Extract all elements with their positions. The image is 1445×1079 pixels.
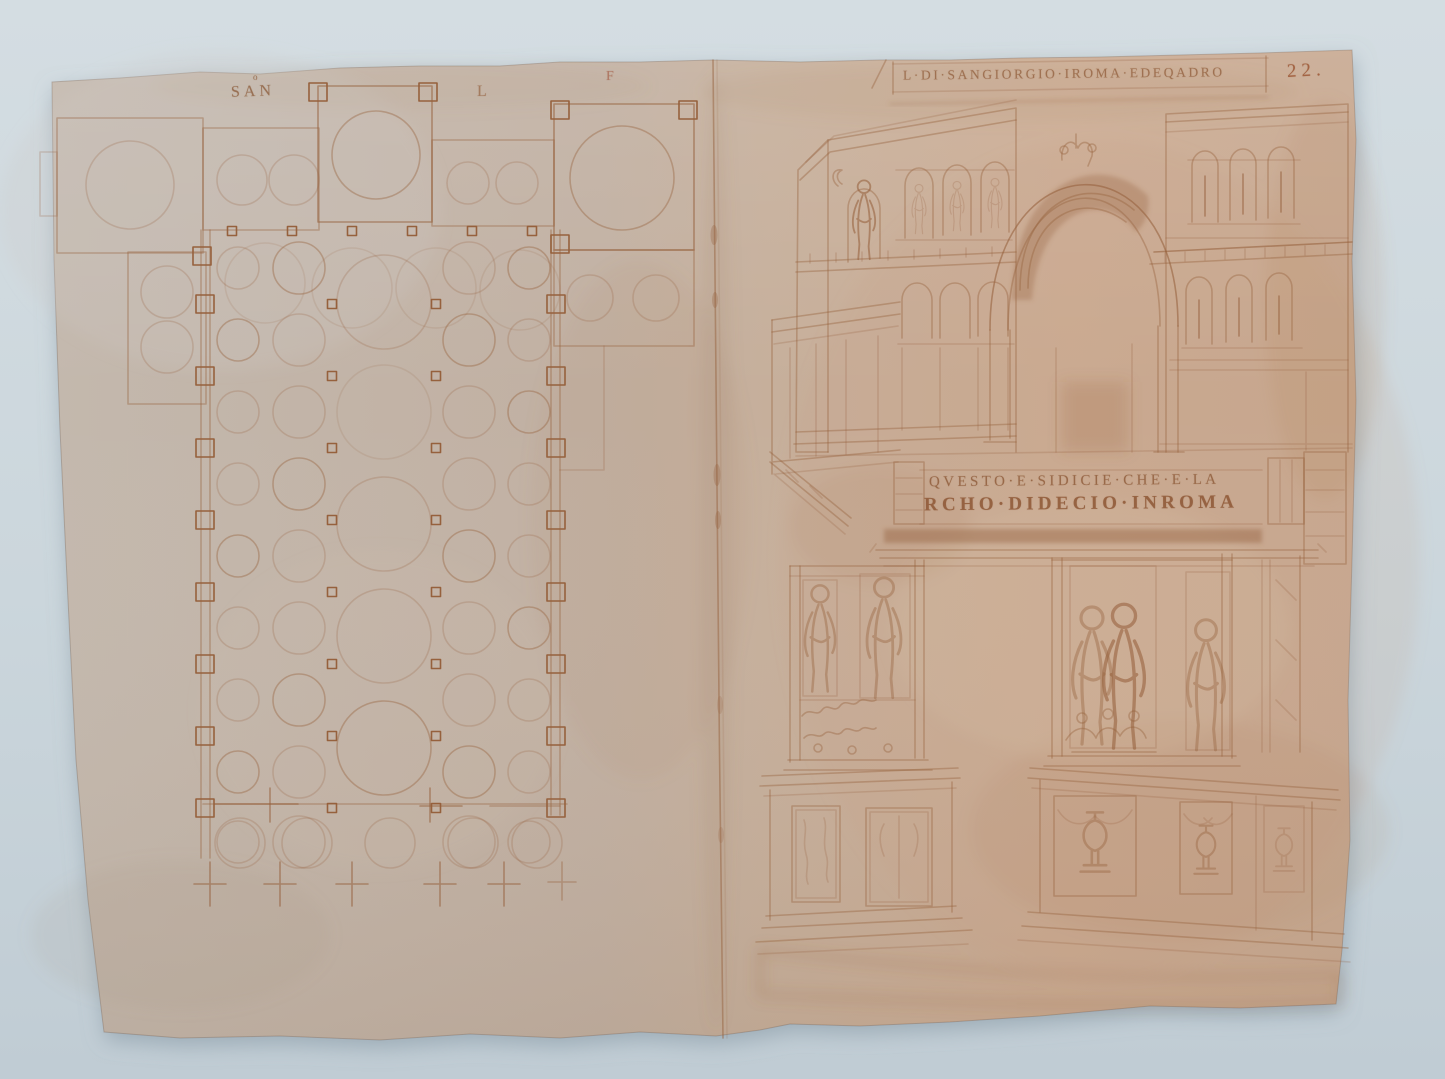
photo-background: SAN o L F L·DI·SANGIORGIO·IROMA·EDEQADRO… bbox=[0, 0, 1445, 1079]
manuscript-spread: SAN o L F L·DI·SANGIORGIO·IROMA·EDEQADRO… bbox=[0, 0, 1445, 1079]
plan-label-l: L bbox=[477, 83, 487, 101]
plan-label-san: SAN bbox=[231, 82, 276, 102]
folio-number: 22. bbox=[1286, 59, 1326, 83]
plan-label-f: F bbox=[606, 69, 614, 85]
inscription-line-2: RCHO·DIDECIO·INROMA bbox=[924, 492, 1238, 517]
plan-label-san-mark: o bbox=[253, 72, 258, 82]
caption-title: L·DI·SANGIORGIO·IROMA·EDEQADRO bbox=[903, 64, 1225, 83]
inscription-line-1: QVESTO·E·SIDICIE·CHE·E·LA bbox=[929, 472, 1220, 492]
drawing-svg bbox=[0, 0, 1445, 1079]
